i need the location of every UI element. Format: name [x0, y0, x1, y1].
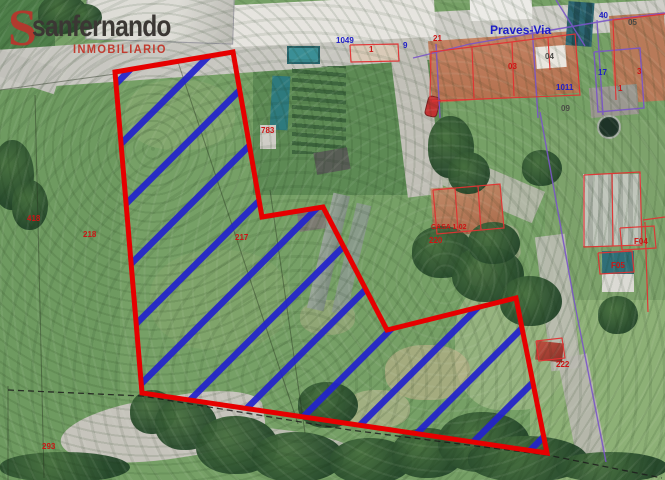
cadastral-label: 3 — [637, 68, 641, 76]
cadastral-label: 783 — [261, 127, 274, 135]
agency-logo: S sanfernando INMOBILIARIO — [6, 6, 216, 64]
cadastral-label: 222 — [556, 361, 569, 369]
aerial-map: 2110499Praves-Via40050304317101110917834… — [0, 0, 665, 480]
cadastral-label: 17 — [598, 69, 607, 77]
cadastral-label: F04 — [634, 238, 648, 246]
cadastral-label: 217 — [235, 234, 248, 242]
labels-layer: 2110499Praves-Via40050304317101110917834… — [0, 0, 665, 480]
street-label: Praves-Via — [490, 24, 551, 36]
cadastral-label: 1 — [369, 46, 373, 54]
cadastral-label: 418 — [27, 215, 40, 223]
logo-name: sanfernando — [32, 10, 171, 44]
cadastral-label: 293 — [42, 443, 55, 451]
cadastral-label: 21 — [433, 35, 442, 43]
cadastral-label: 05 — [628, 19, 637, 27]
cadastral-label: F05 — [611, 262, 625, 270]
cadastral-label: 03 — [508, 63, 517, 71]
cadastral-label: 1011 — [556, 84, 573, 92]
cadastral-label: 9 — [403, 42, 407, 50]
cadastral-label: 09 — [561, 105, 570, 113]
cadastral-label: 40 — [599, 12, 608, 20]
cadastral-label: 1049 — [336, 37, 354, 45]
logo-subtitle: INMOBILIARIO — [73, 42, 167, 56]
cadastral-label: 220 — [429, 237, 442, 245]
cadastral-label: CASA 1-02 — [431, 224, 467, 231]
cadastral-label: 1 — [618, 85, 622, 93]
cadastral-label: 218 — [83, 231, 96, 239]
cadastral-label: 04 — [545, 53, 554, 61]
